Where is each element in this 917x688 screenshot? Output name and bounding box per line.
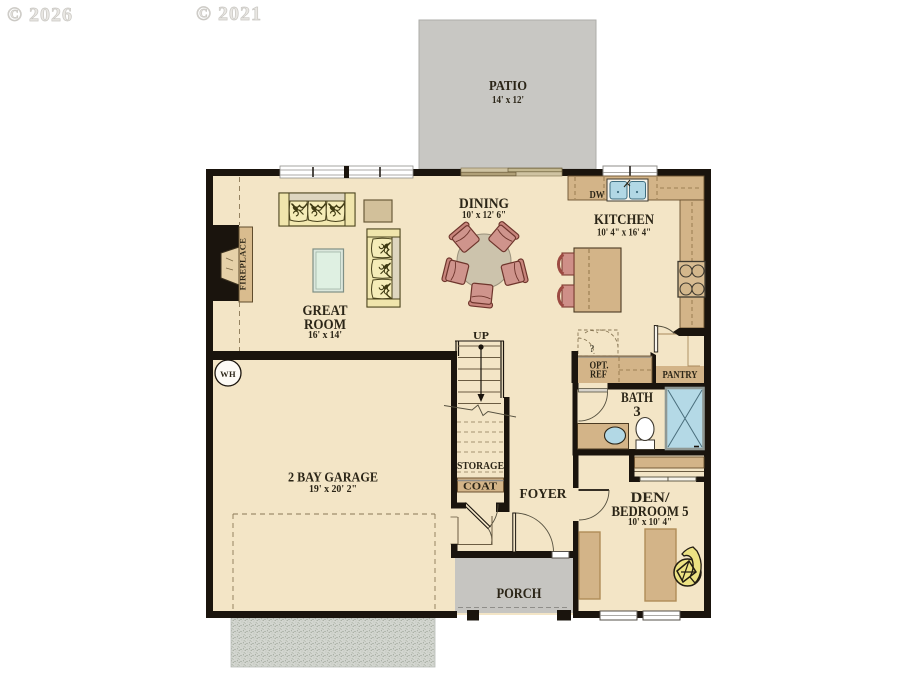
svg-text:REF: REF [590, 370, 607, 381]
svg-text:?: ? [590, 344, 595, 355]
svg-text:© 2026: © 2026 [7, 4, 73, 26]
svg-text:UP: UP [473, 330, 489, 342]
svg-text:COAT: COAT [463, 482, 497, 493]
svg-text:FOYER: FOYER [520, 487, 568, 502]
svg-text:© 2021: © 2021 [196, 3, 262, 25]
svg-text:KITCHEN: KITCHEN [594, 212, 654, 228]
svg-text:10' 4" x 16' 4": 10' 4" x 16' 4" [597, 228, 651, 239]
svg-text:16' x 14': 16' x 14' [308, 330, 342, 341]
svg-text:14' x 12': 14' x 12' [492, 95, 524, 106]
svg-text:STORAGE: STORAGE [457, 460, 504, 472]
svg-text:10' x 12' 6": 10' x 12' 6" [462, 210, 506, 221]
svg-text:10' x 10' 4": 10' x 10' 4" [628, 517, 672, 528]
svg-text:3: 3 [633, 404, 640, 420]
svg-text:PANTRY: PANTRY [663, 370, 698, 381]
svg-text:19' x 20' 2": 19' x 20' 2" [309, 484, 357, 495]
svg-text:2 BAY GARAGE: 2 BAY GARAGE [288, 470, 378, 485]
svg-text:FIREPLACE: FIREPLACE [238, 238, 248, 291]
svg-text:PORCH: PORCH [497, 586, 543, 602]
svg-text:WH: WH [220, 369, 236, 379]
svg-text:PATIO: PATIO [489, 79, 527, 94]
svg-text:DW: DW [590, 190, 605, 201]
